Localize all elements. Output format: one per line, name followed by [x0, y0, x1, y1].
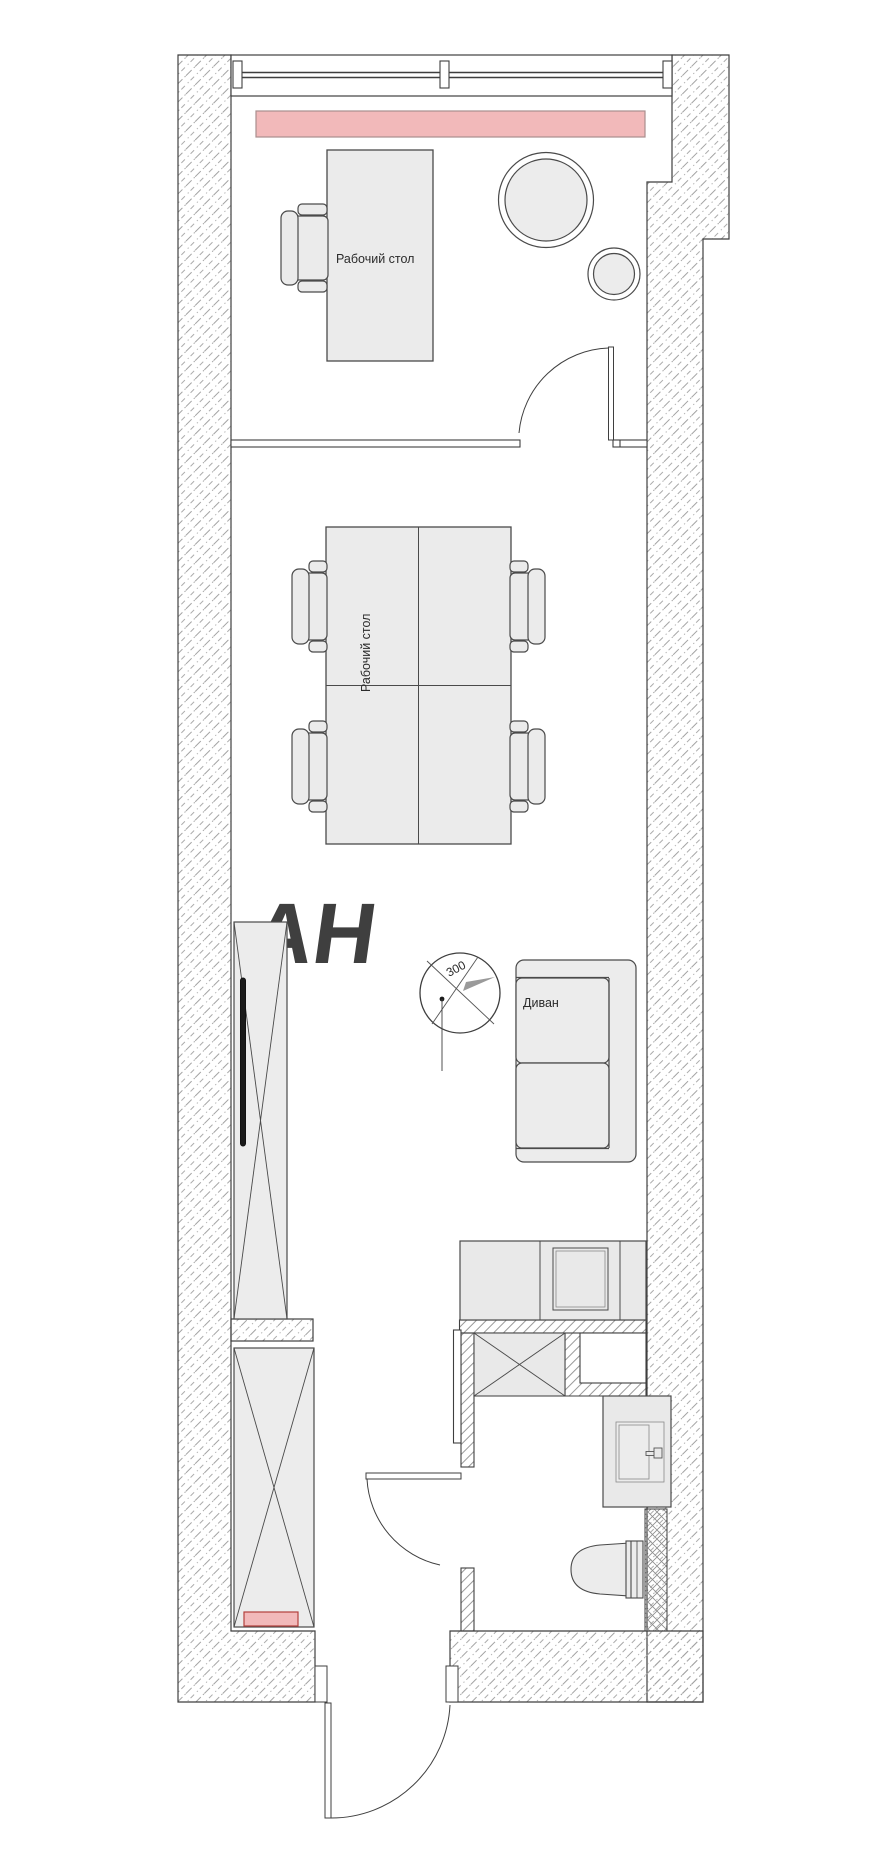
svg-text:Рабочий стол: Рабочий стол — [336, 252, 414, 266]
svg-text:Рабочий стол: Рабочий стол — [359, 614, 373, 692]
svg-text:Диван: Диван — [523, 996, 559, 1010]
